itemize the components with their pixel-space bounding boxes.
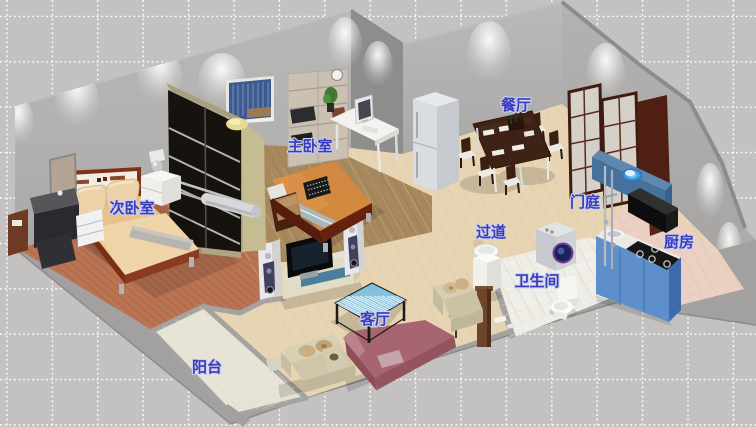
svg-text:厨房: 厨房 <box>664 233 694 251</box>
svg-text:过道: 过道 <box>476 223 506 241</box>
svg-text:主卧室: 主卧室 <box>287 137 332 155</box>
svg-text:次卧室: 次卧室 <box>109 199 154 217</box>
svg-text:阳台: 阳台 <box>192 358 222 376</box>
svg-text:餐厅: 餐厅 <box>501 96 531 114</box>
svg-text:客厅: 客厅 <box>359 310 390 328</box>
svg-text:卫生间: 卫生间 <box>514 272 559 290</box>
svg-text:门庭: 门庭 <box>570 193 601 211</box>
